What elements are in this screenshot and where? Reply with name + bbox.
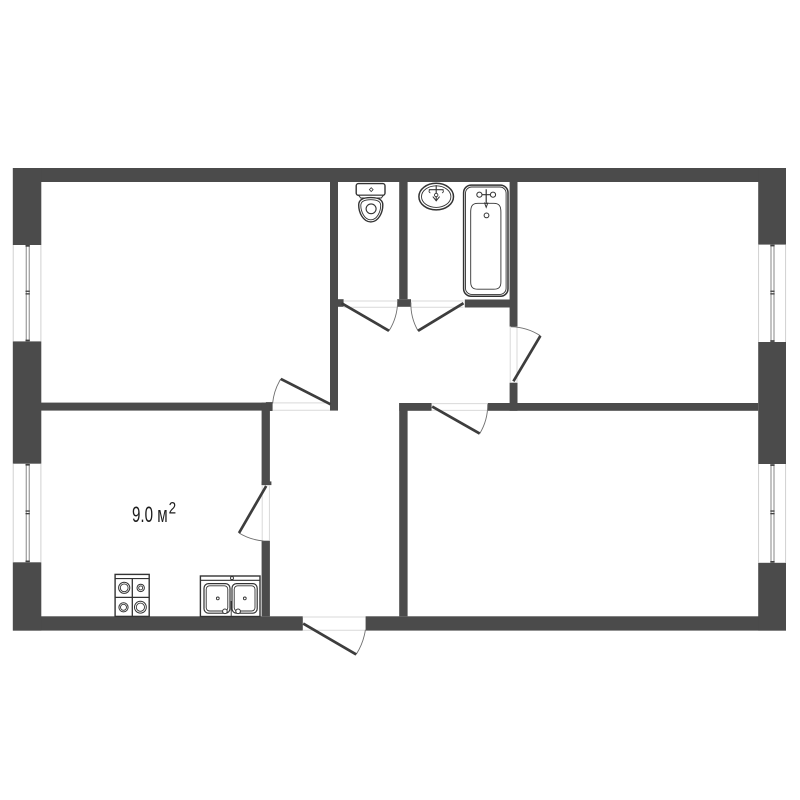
svg-text:2: 2 [169,500,177,518]
svg-text:9.0 м: 9.0 м [132,502,168,527]
